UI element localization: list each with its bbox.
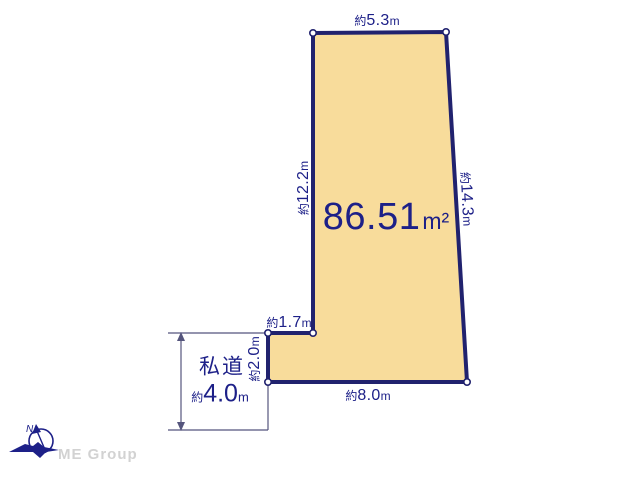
- area-value: 86.51: [323, 196, 421, 238]
- dimension-prefix: 約: [345, 389, 357, 403]
- dimension-label-left: 約12.2m: [296, 161, 312, 215]
- dimension-prefix: 約: [191, 391, 203, 405]
- dimension-value: 1.7: [278, 314, 301, 331]
- corner-dot-bottom-left: [265, 379, 271, 385]
- dimension-value: 12.2: [295, 171, 312, 203]
- area-unit: m²: [422, 208, 449, 234]
- dimension-prefix: 約: [458, 171, 473, 184]
- road-width-arrow: [177, 332, 185, 431]
- dimension-unit: m: [460, 216, 475, 227]
- private-road-width-label: 約4.0m: [191, 382, 249, 407]
- dimension-unit: m: [381, 389, 391, 403]
- site-plan-canvas: N 約5.3m 約12.2m 約14.3m 約1.7m 約2.0m 約8.0m …: [0, 0, 640, 480]
- dimension-value: 2.0: [246, 346, 263, 369]
- dimension-unit: m: [297, 161, 311, 171]
- dimension-label-top: 約5.3m: [354, 13, 399, 29]
- dimension-unit: m: [248, 336, 262, 346]
- dimension-label-bottom: 約8.0m: [345, 388, 390, 404]
- dimension-value: 5.3: [366, 12, 389, 29]
- compass-icon: N: [9, 424, 59, 458]
- dimension-prefix: 約: [248, 370, 262, 382]
- dimension-unit: m: [302, 316, 312, 330]
- dimension-label-setback-depth: 約2.0m: [247, 336, 263, 381]
- dimension-unit: m: [238, 390, 249, 405]
- site-plan-drawing: N: [0, 0, 640, 480]
- dimension-prefix: 約: [354, 14, 366, 28]
- private-road-name-label: 私道: [199, 357, 245, 378]
- bird-icon: [9, 442, 59, 458]
- dimension-unit: m: [390, 14, 400, 28]
- dimension-value: 4.0: [203, 380, 238, 408]
- dimension-prefix: 約: [297, 203, 311, 215]
- area-label: 86.51m²: [323, 198, 449, 236]
- dimension-value: 8.0: [357, 387, 380, 404]
- dimension-label-setback-width: 約1.7m: [266, 315, 311, 331]
- corner-dot-top-right: [443, 29, 449, 35]
- brand-logo-text: ME Group: [58, 446, 138, 463]
- dimension-label-right: 約14.3m: [457, 171, 476, 226]
- dimension-prefix: 約: [266, 316, 278, 330]
- corner-dot-top-left: [310, 30, 316, 36]
- dimension-value: 14.3: [457, 183, 476, 216]
- corner-dot-bottom-right: [464, 379, 470, 385]
- compass-north-label: N: [26, 424, 34, 435]
